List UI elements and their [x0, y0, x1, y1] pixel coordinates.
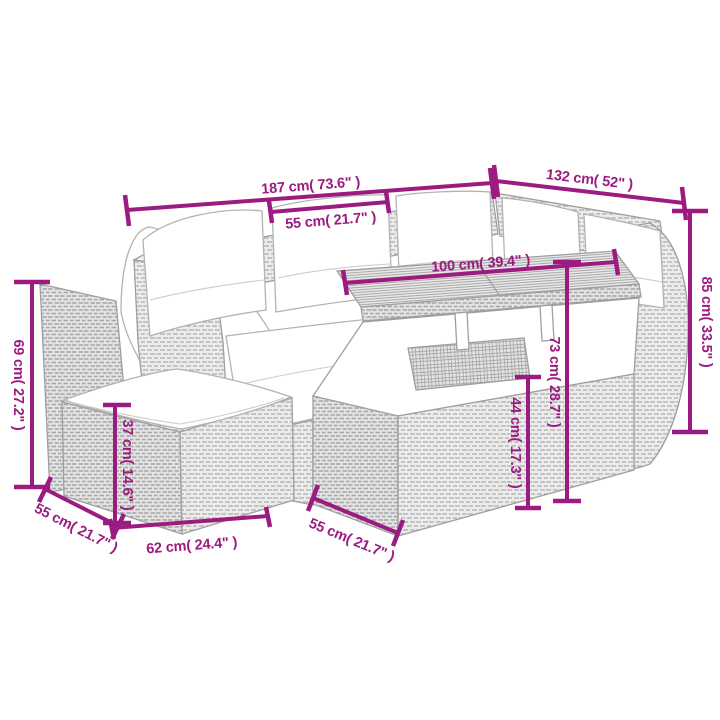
table-sketch [313, 251, 641, 536]
table-height-label: 73 cm( 28.7" ) [546, 336, 562, 427]
furniture-illustration [40, 191, 688, 536]
ottoman-width-label: 62 cm( 24.4" ) [146, 535, 238, 558]
diagram-canvas: 187 cm( 73.6" ) 132 cm( 52" ) 55 cm( 21.… [0, 0, 720, 720]
dimension-diagram: 187 cm( 73.6" ) 132 cm( 52" ) 55 cm( 21.… [0, 0, 720, 720]
overall-height-label: 85 cm( 33.5" ) [698, 276, 714, 367]
table-clearance-height-label: 44 cm( 17.3" ) [507, 397, 523, 488]
ottoman-sketch [62, 369, 294, 534]
left-backrest-height-label: 69 cm( 27.2" ) [10, 339, 26, 430]
table-leg [455, 312, 469, 350]
ottoman-height-label: 37 cm( 14.6" ) [119, 419, 135, 510]
